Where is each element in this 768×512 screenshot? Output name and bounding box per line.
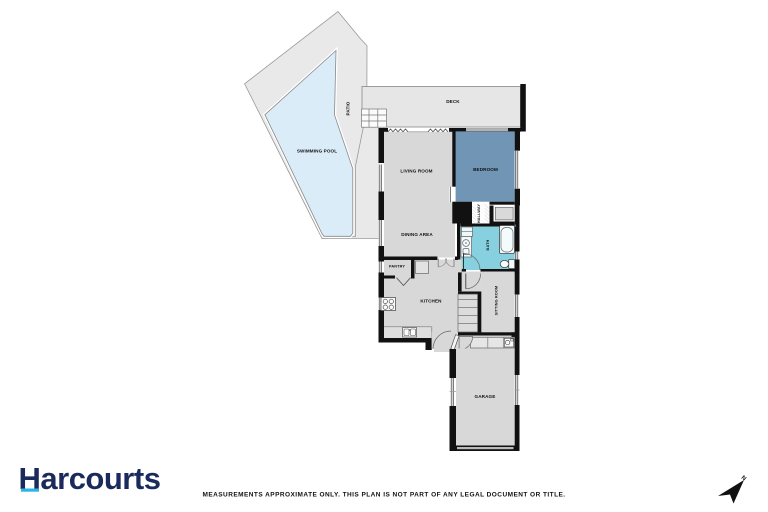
svg-text:BATH: BATH [486,239,490,250]
svg-text:DINING AREA: DINING AREA [401,232,433,237]
svg-text:BEDROOM: BEDROOM [473,167,498,172]
svg-text:PANTRY: PANTRY [389,265,405,269]
svg-text:HALLWAY: HALLWAY [477,204,481,224]
svg-text:KITCHEN: KITCHEN [420,299,442,304]
svg-text:LIVING ROOM: LIVING ROOM [400,169,432,174]
svg-text:SWIMMING POOL: SWIMMING POOL [297,149,337,154]
svg-text:PATIO: PATIO [345,101,350,115]
svg-text:MEASUREMENTS APPROXIMATE ONLY.: MEASUREMENTS APPROXIMATE ONLY. THIS PLAN… [202,492,565,499]
svg-text:DECK: DECK [446,99,460,104]
svg-text:SITTING ROOM: SITTING ROOM [495,286,499,316]
svg-text:GARAGE: GARAGE [475,394,496,399]
svg-text:Harcourts: Harcourts [19,461,161,496]
